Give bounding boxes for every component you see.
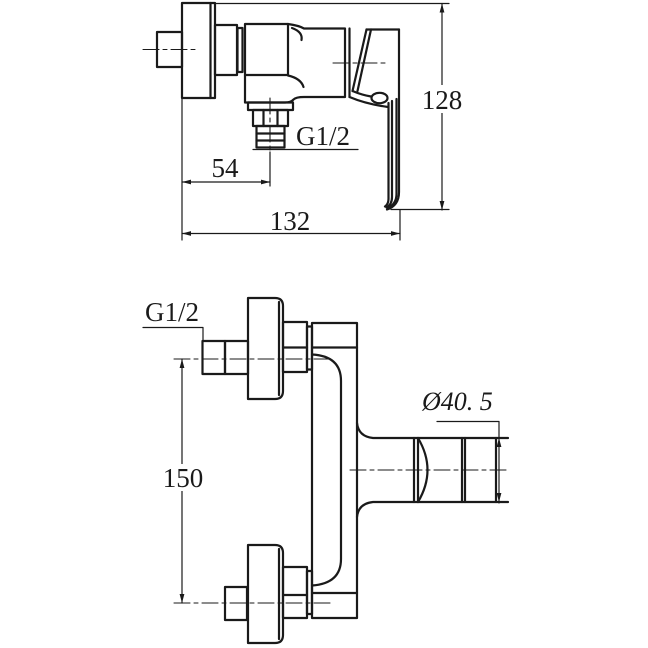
bottom-hex-nut <box>283 567 307 618</box>
dimension-labels: 128 54 132 G1/2 150 G1/2 Ø40. 5 <box>145 85 493 493</box>
bottom-escutcheon-flange <box>248 545 283 643</box>
handle-lever <box>333 30 399 210</box>
technical-drawing-canvas: 128 54 132 G1/2 150 G1/2 Ø40. 5 <box>0 0 648 648</box>
dim-150-label: 150 <box>163 463 204 493</box>
wall-connector <box>215 25 243 75</box>
cartridge-housing <box>245 24 288 75</box>
wall-flange <box>182 3 215 98</box>
inlet-stub <box>143 32 197 67</box>
outlet-pipe <box>350 423 508 517</box>
outlet-fitting <box>248 98 293 152</box>
body-outline <box>245 24 345 103</box>
thread-g12-top-label: G1/2 <box>296 121 350 151</box>
bottom-inlet-assembly <box>174 545 332 643</box>
body-plate-contour <box>312 355 341 586</box>
thread-g12-front-label: G1/2 <box>145 297 199 327</box>
dim-128-label: 128 <box>422 85 463 115</box>
top-escutcheon-flange <box>248 298 283 399</box>
dim-54-label: 54 <box>212 153 240 183</box>
dim-line-diameter <box>437 422 499 504</box>
lever-hub-detail <box>372 93 388 103</box>
shower-mixer-drawing: 128 54 132 G1/2 150 G1/2 Ø40. 5 <box>0 0 648 648</box>
dim-132-label: 132 <box>270 206 311 236</box>
dim-diameter-label: Ø40. 5 <box>421 387 493 416</box>
leader-g12-front <box>143 328 203 342</box>
